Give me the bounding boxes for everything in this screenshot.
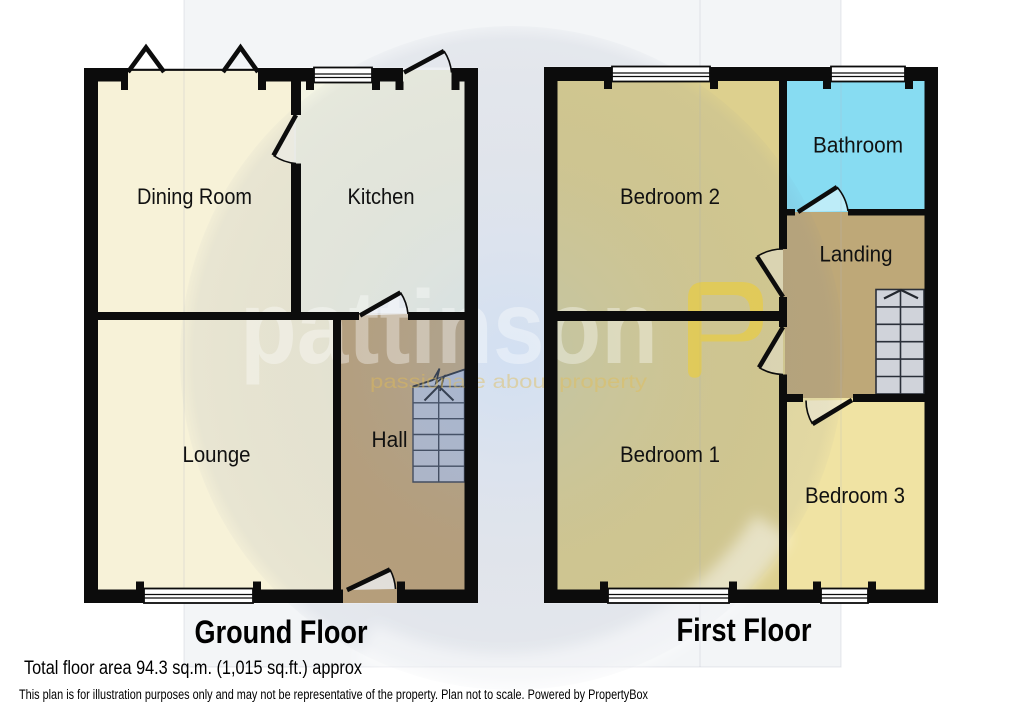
svg-text:First Floor: First Floor bbox=[677, 612, 812, 648]
svg-text:Ground Floor: Ground Floor bbox=[195, 614, 368, 650]
svg-text:Bedroom 1: Bedroom 1 bbox=[620, 442, 720, 467]
svg-text:Dining Room: Dining Room bbox=[137, 184, 252, 209]
svg-text:Bathroom: Bathroom bbox=[813, 133, 903, 158]
svg-text:Landing: Landing bbox=[820, 242, 893, 267]
svg-text:This plan is for illustration: This plan is for illustration purposes o… bbox=[19, 687, 648, 702]
svg-text:Kitchen: Kitchen bbox=[348, 184, 415, 209]
svg-text:Bedroom 2: Bedroom 2 bbox=[620, 184, 720, 209]
svg-text:Total floor area 94.3 sq.m. (1: Total floor area 94.3 sq.m. (1,015 sq.ft… bbox=[24, 658, 362, 679]
svg-text:pattinson: pattinson bbox=[240, 270, 658, 386]
svg-text:Lounge: Lounge bbox=[183, 442, 251, 467]
svg-text:Hall: Hall bbox=[372, 427, 408, 452]
svg-text:passionate about property: passionate about property bbox=[370, 371, 647, 393]
svg-text:Bedroom 3: Bedroom 3 bbox=[805, 483, 905, 508]
